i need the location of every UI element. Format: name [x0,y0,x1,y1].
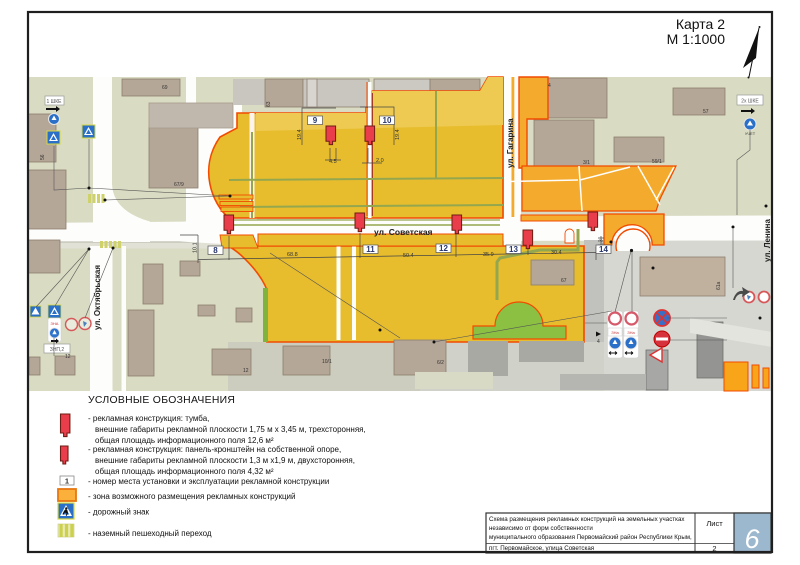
svg-text:14: 14 [599,245,608,254]
svg-text:ул. Октябрьская: ул. Октябрьская [93,265,102,330]
svg-text:19.4: 19.4 [297,129,303,140]
svg-text:69: 69 [162,85,168,91]
svg-text:12: 12 [65,354,71,360]
svg-text:9: 9 [313,116,318,125]
svg-text:- дорожный знак: - дорожный знак [88,508,150,517]
svg-text:11: 11 [366,245,375,254]
svg-text:6/2: 6/2 [437,360,444,366]
svg-text:12: 12 [439,244,448,253]
svg-text:10.1: 10.1 [193,242,199,253]
svg-text:- наземный пешеходный переход: - наземный пешеходный переход [88,529,212,538]
svg-text:ЗНА: ЗНА [51,321,59,326]
svg-text:ЗНа: ЗНа [627,330,635,335]
svg-text:независимо от форм собственнос: независимо от форм собственности [489,525,593,532]
svg-text:63: 63 [266,101,272,107]
svg-text:61а: 61а [716,281,722,290]
svg-text:- рекламная конструкция: пане: - рекламная конструкция: панель-кронштей… [88,445,341,454]
svg-text:общая площадь информационного: общая площадь информационного поля 4,32 … [95,467,274,476]
svg-text:57: 57 [703,109,709,115]
svg-text:- номер места установки и эксп: - номер места установки и эксплуатации р… [88,477,329,486]
svg-text:ул. Гагарина: ул. Гагарина [506,118,515,168]
svg-text:- зона возможного размещения р: - зона возможного размещения рекламных к… [88,492,296,501]
svg-text:внешние габариты рекламной пло: внешние габариты рекламной плоскости 1,3… [95,456,355,465]
svg-text:4: 4 [548,83,551,89]
svg-text:ЗНП,2: ЗНП,2 [50,347,65,353]
svg-text:ул. Ленина: ул. Ленина [763,218,772,262]
svg-text:2.0: 2.0 [376,158,384,164]
svg-text:67/9: 67/9 [174,182,184,188]
svg-text:Схема размещения рекламных кон: Схема размещения рекламных конструкций н… [489,516,685,523]
svg-text:внешние габариты рекламной пло: внешние габариты рекламной плоскости 1,7… [95,425,366,434]
svg-text:6: 6 [744,524,760,554]
svg-text:3/1: 3/1 [583,160,590,166]
svg-text:УСЛОВНЫЕ ОБОЗНАЧЕНИЯ: УСЛОВНЫЕ ОБОЗНАЧЕНИЯ [88,395,235,406]
svg-text:12: 12 [243,368,249,374]
svg-text:ЗНа: ЗНа [611,330,619,335]
svg-text:10: 10 [383,116,392,125]
svg-text:М 1:1000: М 1:1000 [667,31,726,47]
svg-text:67: 67 [561,278,567,284]
svg-text:общая площадь информационного: общая площадь информационного поля 12,6 … [95,436,274,445]
svg-text:4.5: 4.5 [329,159,337,165]
svg-text:35.9: 35.9 [483,252,494,258]
svg-text:Лист: Лист [706,519,723,528]
svg-text:19.4: 19.4 [395,129,401,140]
svg-text:56: 56 [40,154,46,160]
svg-text:1 ШКЕ: 1 ШКЕ [47,99,63,105]
svg-text:68.8: 68.8 [287,252,298,258]
svg-text:13: 13 [509,245,518,254]
svg-text:1: 1 [65,477,69,486]
svg-text:10/1: 10/1 [322,359,332,365]
svg-text:8: 8 [213,246,218,255]
svg-text:4: 4 [597,339,600,345]
svg-text:2х ШКЕ: 2х ШКЕ [741,99,759,105]
svg-text:30.4: 30.4 [551,250,562,256]
svg-text:- рекламная конструкция: тумб: - рекламная конструкция: тумба, [88,414,209,423]
svg-text:Карта 2: Карта 2 [676,16,725,32]
svg-text:50.4: 50.4 [403,253,414,259]
svg-text:ул. Советская: ул. Советская [374,227,433,237]
svg-text:59/1: 59/1 [652,159,662,165]
svg-text:муниципального образования Пер: муниципального образования Первомайский … [489,534,692,541]
